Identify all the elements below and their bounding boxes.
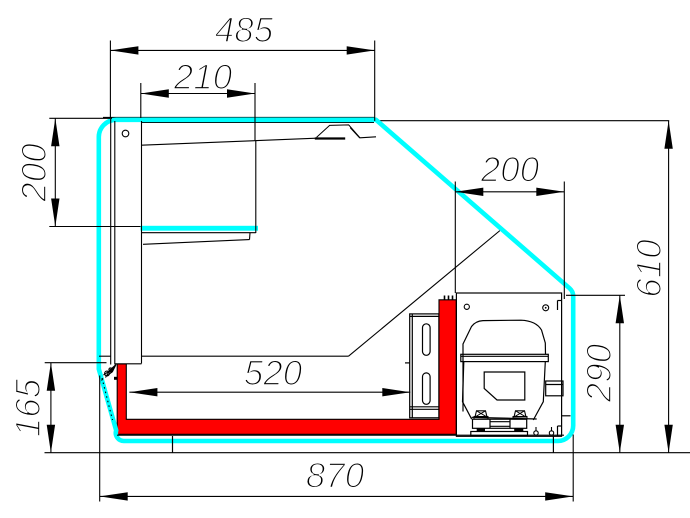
svg-text:520: 520 xyxy=(244,354,303,393)
svg-text:210: 210 xyxy=(173,58,233,97)
svg-text:290: 290 xyxy=(580,343,619,403)
svg-text:200: 200 xyxy=(15,143,54,203)
svg-text:165: 165 xyxy=(9,378,48,437)
svg-text:200: 200 xyxy=(480,151,540,190)
svg-text:610: 610 xyxy=(630,239,669,298)
svg-text:870: 870 xyxy=(306,457,365,496)
svg-text:485: 485 xyxy=(215,11,274,50)
